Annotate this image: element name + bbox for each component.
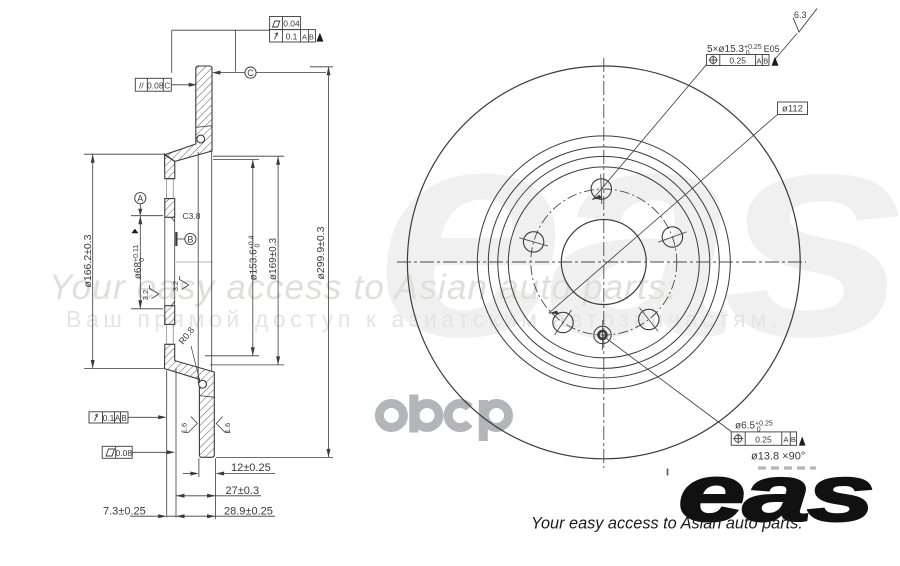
svg-text:ø166.2±0.3: ø166.2±0.3: [82, 234, 94, 287]
svg-text:0.1: 0.1: [286, 32, 298, 42]
svg-text:3.2: 3.2: [141, 290, 150, 300]
svg-text:ø112: ø112: [782, 103, 803, 114]
svg-text://: //: [139, 81, 144, 91]
svg-text:12±0.25: 12±0.25: [231, 462, 271, 474]
svg-text:C: C: [164, 82, 170, 91]
svg-text:B: B: [309, 33, 314, 42]
svg-text:0.1: 0.1: [103, 413, 115, 423]
svg-text:C3.8: C3.8: [183, 211, 201, 221]
svg-text:B: B: [791, 435, 796, 444]
svg-text:1.6: 1.6: [223, 423, 232, 433]
svg-text:B: B: [763, 56, 768, 65]
svg-text:ø169±0.3: ø169±0.3: [268, 237, 279, 280]
svg-text:1.6: 1.6: [180, 423, 189, 433]
svg-text:28.9±0.25: 28.9±0.25: [224, 506, 273, 518]
svg-text:B: B: [122, 414, 127, 423]
svg-text:6.3: 6.3: [794, 10, 807, 20]
svg-text:A: A: [302, 33, 307, 42]
svg-text:A: A: [115, 414, 121, 423]
svg-text:0.08: 0.08: [147, 81, 164, 91]
svg-text:7.3±0.25: 7.3±0.25: [103, 506, 146, 518]
svg-text:0.04: 0.04: [283, 19, 300, 29]
svg-text:eas: eas: [376, 63, 900, 399]
svg-text:3.2: 3.2: [171, 281, 180, 291]
svg-text:0.25: 0.25: [755, 434, 772, 444]
svg-text:B: B: [187, 234, 193, 244]
svg-text:A: A: [137, 194, 143, 204]
svg-text:0.08: 0.08: [116, 448, 133, 458]
svg-text:27±0.3: 27±0.3: [226, 485, 260, 497]
svg-text:ø299.9±0.3: ø299.9±0.3: [315, 226, 327, 279]
svg-text:A: A: [783, 435, 788, 444]
svg-text:A: A: [756, 56, 761, 65]
svg-text:0.25: 0.25: [729, 56, 746, 66]
svg-text:C: C: [247, 68, 254, 78]
svg-text:Your easy access to Asian auto: Your easy access to Asian auto parts.: [531, 515, 803, 533]
